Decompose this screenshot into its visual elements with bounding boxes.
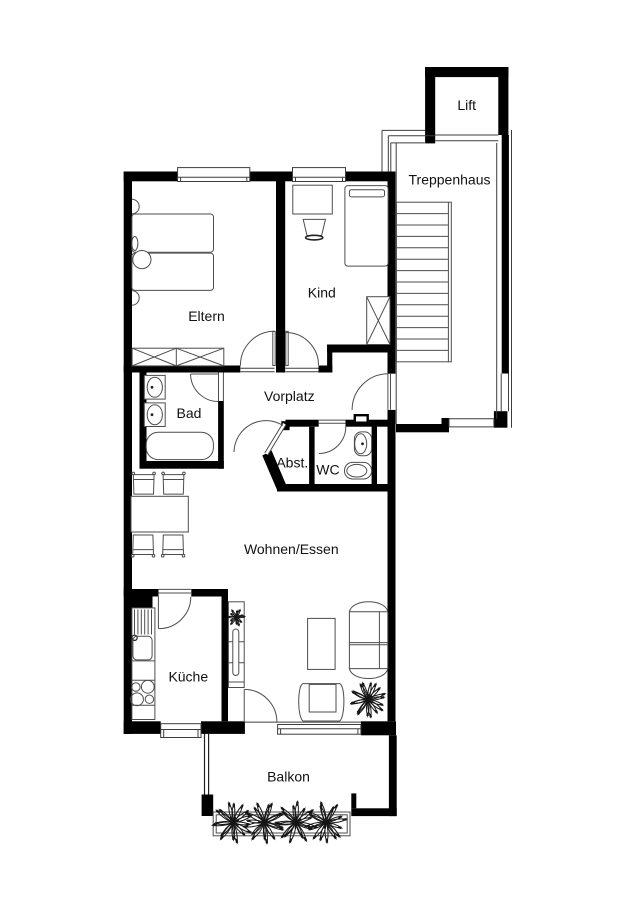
svg-text:Vorplatz: Vorplatz [264, 388, 315, 404]
svg-text:WC: WC [316, 462, 339, 478]
svg-text:Küche: Küche [168, 669, 208, 685]
svg-text:Eltern: Eltern [188, 308, 225, 324]
svg-text:Balkon: Balkon [267, 769, 310, 785]
svg-text:Lift: Lift [457, 97, 476, 113]
svg-text:Bad: Bad [177, 405, 202, 421]
svg-text:Treppenhaus: Treppenhaus [409, 172, 491, 188]
svg-text:Abst.: Abst. [276, 454, 308, 470]
svg-text:Kind: Kind [308, 284, 336, 300]
svg-text:Wohnen/Essen: Wohnen/Essen [244, 541, 339, 557]
